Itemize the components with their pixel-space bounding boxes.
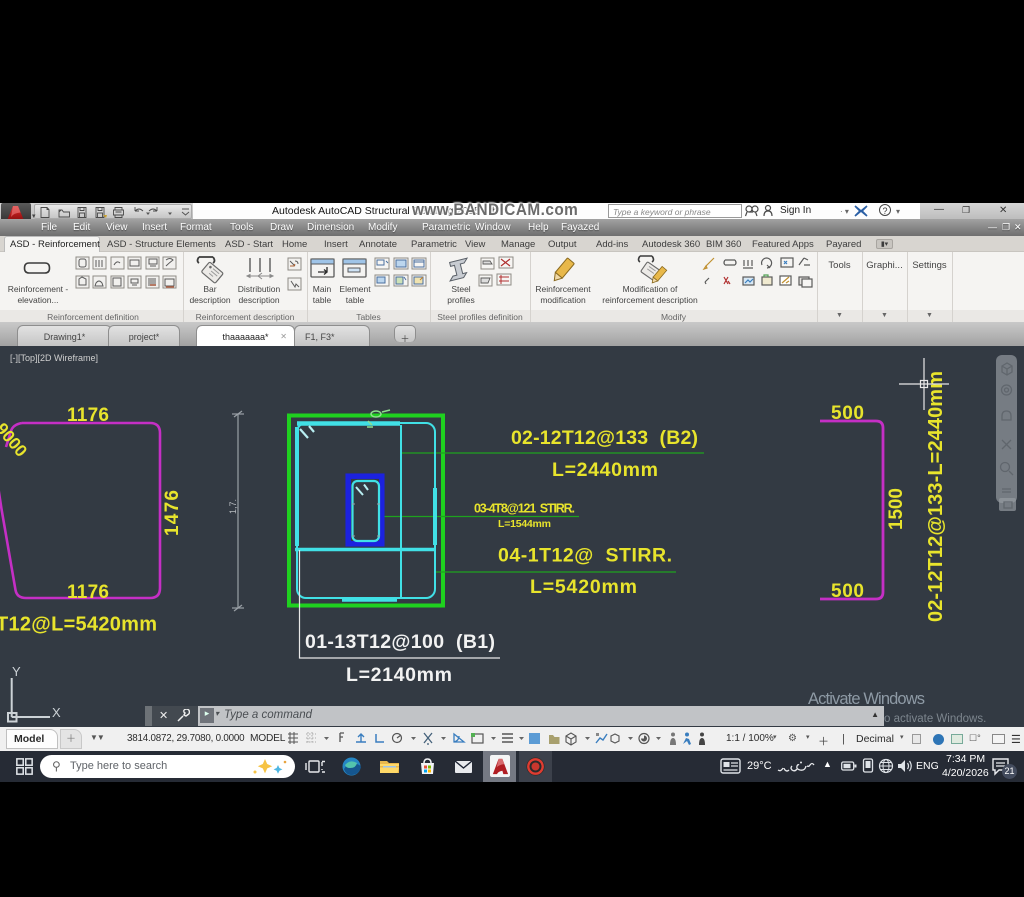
svg-text:1176: 1176 — [67, 405, 109, 426]
svg-text:T12@L=5420mm: T12@L=5420mm — [0, 614, 157, 636]
svg-text:Y: Y — [12, 664, 21, 679]
svg-text:[-][Top][2D Wireframe]: [-][Top][2D Wireframe] — [10, 353, 98, 363]
svg-text:X: X — [52, 705, 61, 720]
svg-text:L=2140mm: L=2140mm — [346, 664, 452, 686]
svg-text:1176: 1176 — [67, 582, 109, 603]
svg-text:01-13T12@100 (B1): 01-13T12@100 (B1) — [305, 631, 495, 653]
svg-text:500: 500 — [831, 403, 864, 424]
svg-text:04-1T12@ STIRR.: 04-1T12@ STIRR. — [498, 545, 672, 567]
svg-text:1500: 1500 — [886, 488, 907, 530]
svg-text:02-12T12@133-L=2440mm: 02-12T12@133-L=2440mm — [925, 371, 947, 622]
svg-text:L=5420mm: L=5420mm — [530, 576, 637, 598]
svg-text:1,7.: 1,7. — [228, 499, 238, 514]
svg-text:500: 500 — [831, 581, 864, 602]
svg-text:o activate Windows.: o activate Windows. — [884, 713, 986, 725]
svg-text:03-4T8@121 STIRR.: 03-4T8@121 STIRR. — [474, 502, 575, 516]
svg-text:L=1544mm: L=1544mm — [498, 518, 551, 530]
svg-text:L=2440mm: L=2440mm — [552, 459, 658, 481]
svg-text:02-12T12@133 (B2): 02-12T12@133 (B2) — [511, 427, 698, 449]
svg-text:1476: 1476 — [162, 490, 183, 536]
